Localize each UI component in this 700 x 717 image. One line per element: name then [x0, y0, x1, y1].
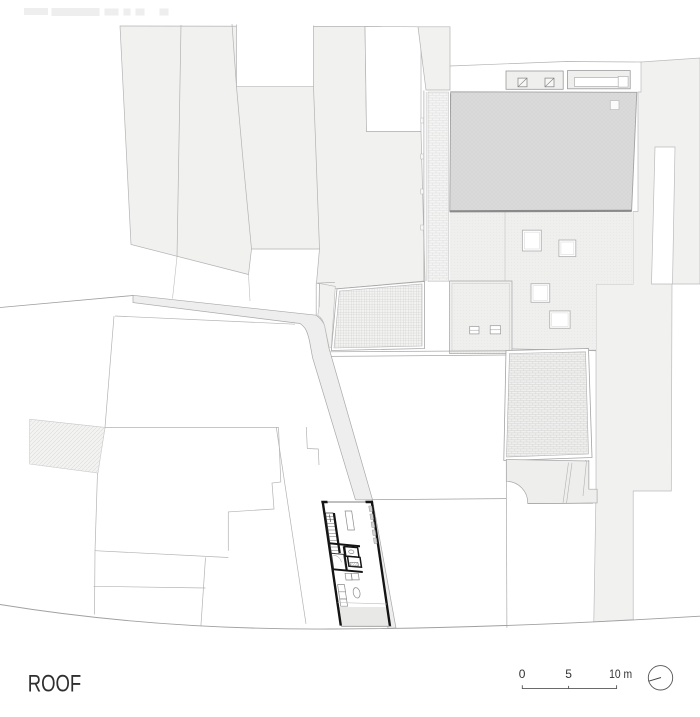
svg-text:5: 5	[565, 667, 572, 681]
svg-text:10 m: 10 m	[609, 667, 632, 681]
svg-text:0: 0	[519, 667, 526, 681]
svg-text:ROOF: ROOF	[28, 672, 81, 698]
